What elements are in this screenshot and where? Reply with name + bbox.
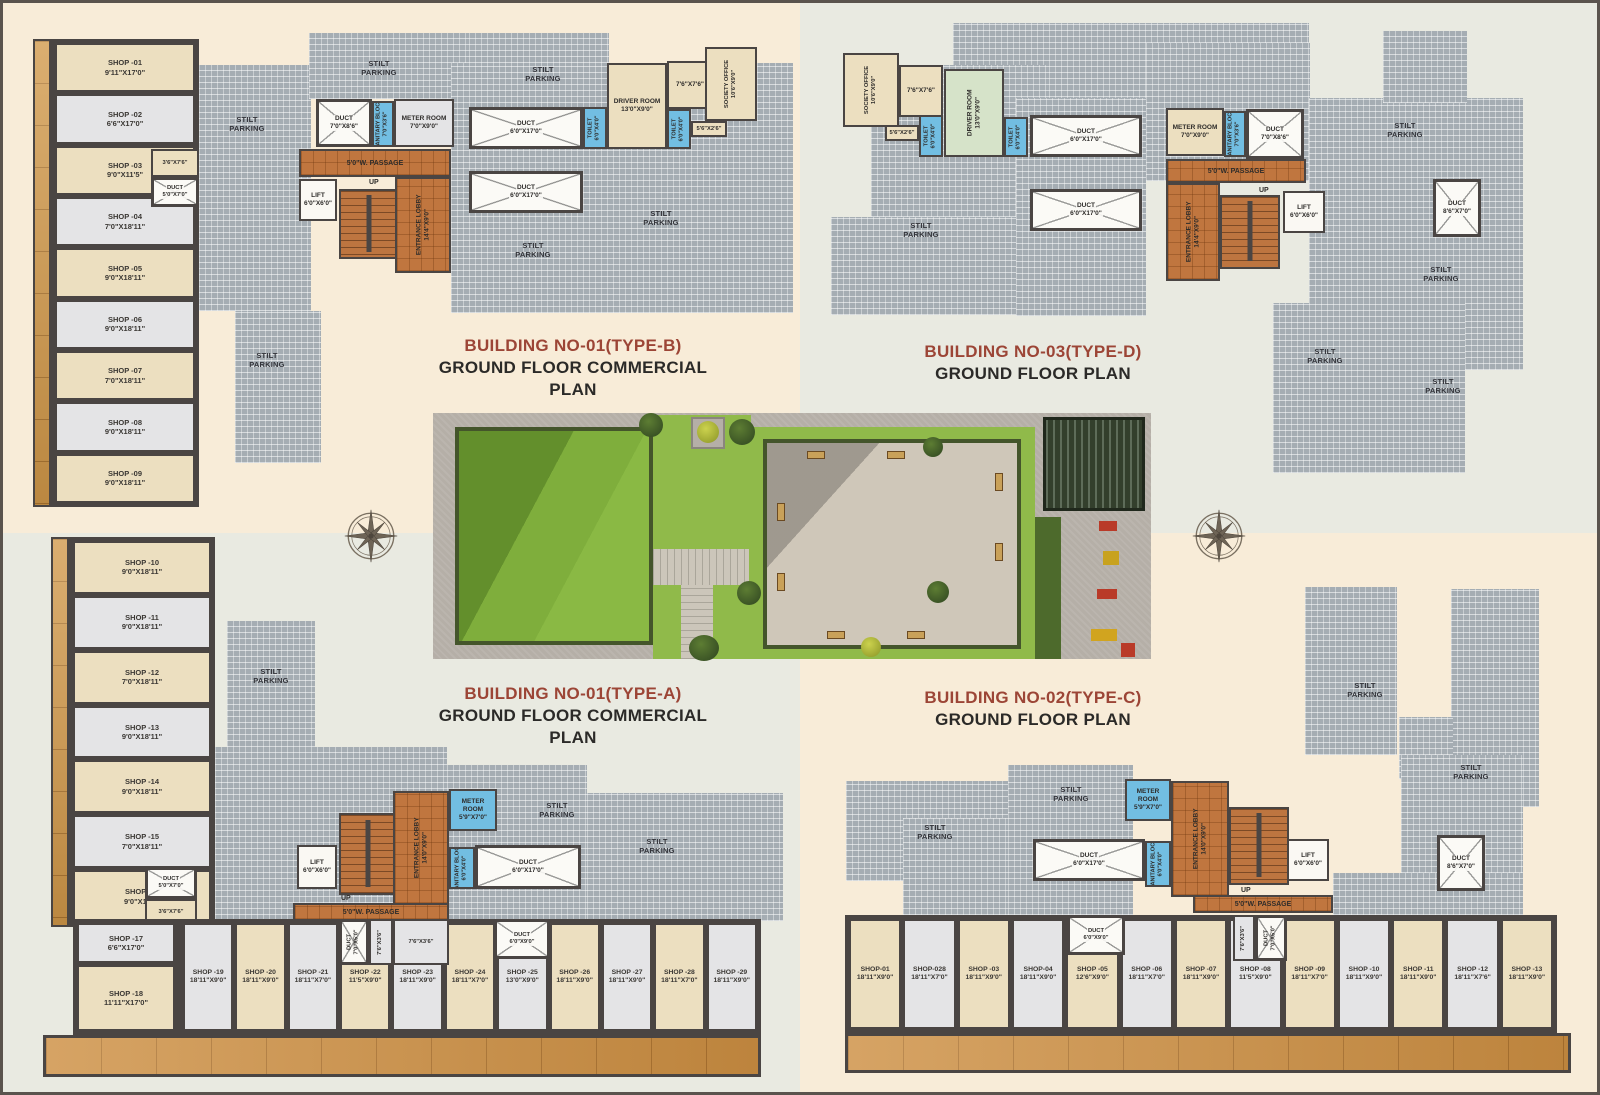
shop-cell: SHOP-04 18'11"X9'0" — [1012, 919, 1064, 1029]
b1a-lift: LIFT 6'0"X6'0" — [297, 845, 337, 889]
b1a-duct: DUCT 6'0"X17'0" — [475, 845, 581, 889]
shop-size: 6'6"X17'0" — [107, 119, 144, 128]
b3d-up-label: UP — [1259, 187, 1269, 194]
bench — [807, 451, 825, 459]
shop-cell: SHOP -07 7'0"X18'11" — [55, 351, 195, 400]
b1b-meter-room: METER ROOM 7'0"X9'0" — [394, 99, 454, 147]
stilt-parking-label: STILT PARKING — [347, 59, 411, 78]
shop-name: SHOP -12 — [1457, 966, 1488, 974]
shop-name: SHOP -25 — [507, 969, 538, 977]
compass-rose-icon — [1191, 508, 1247, 564]
b2c-duct: DUCT 6'0"X9'0" — [1067, 915, 1125, 955]
play-equipment — [1103, 551, 1119, 565]
bench — [777, 573, 785, 591]
hedge-strip — [1035, 517, 1061, 659]
tree — [689, 635, 719, 661]
shop-name: SHOP -03 — [968, 966, 999, 974]
shop-name: SHOP -22 — [350, 969, 381, 977]
b1b-room-3-6x7-6: 3'6"X7'6" — [151, 149, 199, 177]
shop-size: 18'11"X9'0" — [857, 974, 894, 982]
shop-cell: SHOP -28 18'11"X7'0" — [654, 923, 704, 1031]
shop-cell: SHOP-01 18'11"X9'0" — [849, 919, 901, 1029]
shop-name: SHOP -28 — [664, 969, 695, 977]
stilt-parking-label: STILT PARKING — [511, 65, 575, 84]
shop-cell: SHOP -21 18'11"X7'0" — [288, 923, 338, 1031]
b2c-entrance-lobby: ENTRANCE LOBBY14'0"X9'0" — [1171, 781, 1229, 897]
b1b-driver-room: DRIVER ROOM 13'0"X9'0" — [607, 63, 667, 149]
bench — [907, 631, 925, 639]
b1a-duct: DUCT 6'0"X9'0" — [494, 919, 550, 959]
shop-name: SHOP -24 — [455, 969, 486, 977]
stilt-parking-label: STILT PARKING — [889, 221, 953, 240]
shop-name: SHOP -21 — [297, 969, 328, 977]
shop-cell: SHOP -13 18'11"X9'0" — [1501, 919, 1553, 1029]
b3d-duct: DUCT 7'0"X8'6" — [1246, 109, 1304, 159]
b3d-title: BUILDING NO-03(TYPE-D) GROUND FLOOR PLAN — [883, 341, 1183, 385]
shop-size: 18'11"X9'0" — [609, 977, 646, 985]
shop-name: SHOP -06 — [108, 315, 142, 324]
shop-size: 13'0"X9'0" — [506, 977, 539, 985]
shop-name: SHOP -10 — [1349, 966, 1380, 974]
shop-size: 18'11"X7'0" — [1128, 974, 1165, 982]
shop-size: 18'11"X9'0" — [399, 977, 436, 985]
b1b-room-5-6x2-6: 5'6"X2'6" — [691, 121, 727, 137]
shop-name: SHOP -23 — [402, 969, 433, 977]
shop-name: SHOP -08 — [108, 418, 142, 427]
shop-name: SHOP -11 — [125, 613, 159, 622]
courtyard-render — [433, 413, 1151, 659]
b1a-duct: DUCT 5'0"X7'0" — [145, 867, 197, 899]
b3d-duct: DUCT 6'0"X17'0" — [1030, 115, 1142, 157]
b1a-shop-row: SHOP -19 18'11"X9'0" SHOP -20 18'11"X9'0… — [179, 919, 761, 1035]
b1a-up-label: UP — [341, 895, 351, 902]
b3d-title-line1: BUILDING NO-03(TYPE-D) — [883, 341, 1183, 363]
shop-name: SHOP -17 — [109, 934, 143, 943]
bench — [777, 503, 785, 521]
plaza — [763, 439, 1021, 649]
b1a-staircase — [339, 813, 397, 895]
shop-name: SHOP -06 — [1131, 966, 1162, 974]
b2c-shop-row: SHOP-01 18'11"X9'0" SHOP-028 18'11"X7'0"… — [845, 915, 1557, 1033]
shop-name: SHOP -29 — [716, 969, 747, 977]
stilt-parking-label: STILT PARKING — [501, 241, 565, 260]
shop-size: 9'0"X18'11" — [105, 478, 145, 487]
compass-rose-icon — [343, 508, 399, 564]
floor-band — [845, 1033, 1571, 1073]
stilt-parking-label: STILT PARKING — [1373, 121, 1437, 140]
shop-size: 9'0"X18'11" — [122, 787, 162, 796]
stilt-parking-label: STILT PARKING — [625, 837, 689, 856]
b3d-toilet: TOILET6'0"X4'0" — [1004, 117, 1028, 157]
stilt-parking-label: STILT PARKING — [235, 351, 299, 370]
b2c-meter-room: METER ROOM 5'9"X7'0" — [1125, 779, 1171, 821]
shop-cell: SHOP -19 18'11"X9'0" — [183, 923, 233, 1031]
shop-name: SHOP -11 — [1403, 966, 1433, 974]
stilt-parking-label: STILT PARKING — [1293, 347, 1357, 366]
b1b-title: BUILDING NO-01(TYPE-B) GROUND FLOOR COMM… — [418, 335, 728, 401]
shop-size: 18'11"X7'0" — [911, 974, 948, 982]
b1a-duct: DUCT7'0"X5'0" — [339, 919, 369, 965]
shop-size: 18'11"X7'6" — [1454, 974, 1491, 982]
shop-size: 18'11"X9'0" — [1346, 974, 1383, 982]
shop-name: SHOP -07 — [108, 366, 142, 375]
stilt-parking-label: STILT PARKING — [629, 209, 693, 228]
trellis-garden — [1043, 417, 1145, 511]
floor-plan-sheet: SHOP -01 9'11"X17'0" SHOP -02 6'6"X17'0"… — [0, 0, 1600, 1095]
b3d-toilet: TOILET6'0"X4'0" — [919, 115, 943, 157]
b1b-toilet: TOILET6'0"X4'0" — [583, 107, 607, 149]
tree — [697, 421, 719, 443]
b1b-shop-strip: SHOP -01 9'11"X17'0" SHOP -02 6'6"X17'0"… — [51, 39, 199, 507]
b3d-meter-room: METER ROOM 7'0"X9'0" — [1166, 108, 1224, 156]
shop-size: 18'11"X7'0" — [661, 977, 698, 985]
b1b-title-line2: GROUND FLOOR COMMERCIAL PLAN — [418, 357, 728, 401]
b2c-title: BUILDING NO-02(TYPE-C) GROUND FLOOR PLAN — [883, 687, 1183, 731]
shop-name: SHOP-04 — [1024, 966, 1053, 974]
shop-name: SHOP -13 — [1511, 966, 1542, 974]
shop-cell: SHOP -07 18'11"X9'0" — [1175, 919, 1227, 1029]
b3d-passage: 5'0"W. PASSAGE — [1166, 159, 1306, 183]
tree — [729, 419, 755, 445]
shop-size: 18'11"X9'0" — [714, 977, 751, 985]
shop-name: SHOP -20 — [245, 969, 276, 977]
bench — [887, 451, 905, 459]
shop-size: 11'5"X9'0" — [1239, 974, 1272, 982]
b1b-title-line1: BUILDING NO-01(TYPE-B) — [418, 335, 728, 357]
shop-size: 18'11"X9'0" — [1183, 974, 1220, 982]
shop-name: SHOP -09 — [108, 469, 142, 478]
play-equipment — [1091, 629, 1117, 641]
shop-cell: SHOP -08 9'0"X18'11" — [55, 402, 195, 451]
stilt-parking-label: STILT PARKING — [525, 801, 589, 820]
stone-path — [653, 549, 751, 585]
lawn — [455, 427, 653, 645]
b2c-sanitary-block: SANITARY BLOCK6'0"X4'0" — [1145, 841, 1171, 887]
shop-cell: SHOP -11 9'0"X18'11" — [73, 596, 211, 649]
shop-cell: SHOP -12 7'0"X18'11" — [73, 651, 211, 704]
b1b-society-office: SOCIETY OFFICE10'6"X9'0" — [705, 47, 757, 121]
shop-size: 18'11"X7'0" — [452, 977, 489, 985]
shop-name: SHOP -12 — [125, 668, 159, 677]
shop-name: SHOP-01 — [861, 966, 890, 974]
shop-cell: SHOP -27 18'11"X9'0" — [602, 923, 652, 1031]
shop-name: SHOP -07 — [1186, 966, 1217, 974]
tree — [861, 637, 881, 657]
b3d-title-line2: GROUND FLOOR PLAN — [883, 363, 1183, 385]
shop-size: 9'0"X18'11" — [105, 324, 145, 333]
b2c-room-7-6x3-6: 7'6"X3'6" — [1233, 915, 1255, 961]
b2c-up-label: UP — [1241, 887, 1251, 894]
shop-size: 18'11"X7'0" — [295, 977, 332, 985]
b1b-duct: DUCT 7'0"X8'6" — [316, 99, 372, 147]
b1a-room-7-6x3-6: 7'6"X3'6" — [393, 919, 449, 965]
tree — [737, 581, 761, 605]
shop-size: 9'0"X18'11" — [122, 732, 162, 741]
b1a-entrance-lobby: ENTRANCE LOBBY14'0"X9'0" — [393, 791, 449, 905]
shop-name: SHOP -18 — [109, 989, 143, 998]
shop-cell: SHOP -26 18'11"X9'0" — [550, 923, 600, 1031]
shop-size: 18'11"X9'0" — [1400, 974, 1437, 982]
b1b-toilet: TOILET6'0"X4'0" — [667, 109, 691, 149]
shop-cell: SHOP -01 9'11"X17'0" — [55, 43, 195, 92]
shop-cell: SHOP -06 18'11"X7'0" — [1121, 919, 1173, 1029]
b3d-lift: LIFT 6'0"X6'0" — [1283, 191, 1325, 233]
bench — [995, 473, 1003, 491]
shop-cell: SHOP -03 18'11"X9'0" — [958, 919, 1010, 1029]
bench — [827, 631, 845, 639]
shop-cell: SHOP -29 18'11"X9'0" — [707, 923, 757, 1031]
b2c-passage: 5'0"W. PASSAGE — [1193, 895, 1333, 913]
b2c-lift: LIFT 6'0"X6'0" — [1287, 839, 1329, 881]
shop-name: SHOP -03 — [108, 161, 142, 170]
tree — [923, 437, 943, 457]
shop-size: 9'0"X18'11" — [122, 622, 162, 631]
shop-size: 12'6"X9'0" — [1076, 974, 1109, 982]
b3d-society-office: SOCIETY OFFICE10'6"X9'0" — [843, 53, 899, 127]
shop-size: 18'11"X7'0" — [1291, 974, 1328, 982]
shop-name: SHOP -26 — [559, 969, 590, 977]
shop-cell: SHOP -10 9'0"X18'11" — [73, 541, 211, 594]
shop-size: 11'5"X9'0" — [349, 977, 382, 985]
shop-size: 9'0"X18'11" — [122, 567, 162, 576]
floor-band — [33, 39, 51, 507]
shop-cell: SHOP -15 7'0"X18'11" — [73, 815, 211, 868]
shop-cell: SHOP-028 18'11"X7'0" — [903, 919, 955, 1029]
shop-name: SHOP -27 — [612, 969, 643, 977]
shop-cell: SHOP -09 9'0"X18'11" — [55, 454, 195, 503]
b3d-staircase — [1220, 195, 1280, 269]
shop-size: 7'0"X18'11" — [105, 376, 145, 385]
shop-size: 18'11"X9'0" — [556, 977, 593, 985]
play-equipment — [1121, 643, 1135, 657]
b3d-driver-room: DRIVER ROOM13'0"X9'0" — [944, 69, 1004, 157]
shop-size: 7'0"X18'11" — [105, 222, 145, 231]
shop-size: 7'0"X18'11" — [122, 842, 162, 851]
shop-cell: SHOP -06 9'0"X18'11" — [55, 300, 195, 349]
stilt-parking-label: STILT PARKING — [239, 667, 303, 686]
stilt-parking-area — [1305, 587, 1397, 755]
shop-name: SHOP -13 — [125, 723, 159, 732]
shop-cell: SHOP -10 18'11"X9'0" — [1338, 919, 1390, 1029]
stilt-parking-area — [1383, 31, 1467, 103]
shop-name: SHOP -19 — [193, 969, 224, 977]
floor-band — [43, 1035, 761, 1077]
play-equipment — [1097, 589, 1117, 599]
shop-name: SHOP -10 — [125, 558, 159, 567]
stilt-parking-area — [235, 311, 321, 463]
b3d-duct: DUCT 6'0"X17'0" — [1030, 189, 1142, 231]
shop-cell: SHOP -17 6'6"X17'0" — [77, 923, 175, 963]
b1a-meter-room: METER ROOM 5'9"X7'0" — [449, 789, 497, 831]
shop-name: SHOP -15 — [125, 832, 159, 841]
b2c-duct: DUCT7'0"X5'0" — [1255, 915, 1287, 961]
b3d-room-7-6x7-6: 7'6"X7'6" — [899, 65, 943, 117]
b1a-shop-block: SHOP -17 6'6"X17'0" SHOP -18 11'11"X17'0… — [73, 919, 179, 1035]
shop-size: 9'0"X18'11" — [105, 427, 145, 436]
stilt-parking-label: STILT PARKING — [1409, 265, 1473, 284]
shop-size: 18'11"X9'0" — [1020, 974, 1057, 982]
b1b-sanitary-block: SANITARY BLOCK7'0"X3'6" — [372, 101, 394, 147]
stilt-parking-area — [1333, 873, 1523, 915]
shop-name: SHOP -14 — [125, 777, 159, 786]
b1b-duct: DUCT 6'0"X17'0" — [469, 171, 583, 213]
shop-name: SHOP -04 — [108, 212, 142, 221]
tree — [927, 581, 949, 603]
stilt-parking-label: STILT PARKING — [903, 823, 967, 842]
stilt-parking-label: STILT PARKING — [1411, 377, 1475, 396]
shop-name: SHOP -02 — [108, 110, 142, 119]
bench — [995, 543, 1003, 561]
stilt-parking-area — [199, 65, 311, 311]
b1a-title-line2: GROUND FLOOR COMMERCIAL PLAN — [418, 705, 728, 749]
shop-cell: SHOP -11 18'11"X9'0" — [1392, 919, 1444, 1029]
b3d-entrance-lobby: ENTRANCE LOBBY14'4"X9'0" — [1166, 183, 1220, 281]
shop-name: SHOP -09 — [1294, 966, 1325, 974]
shop-name: SHOP -01 — [108, 58, 142, 67]
shop-cell: SHOP -12 18'11"X7'6" — [1446, 919, 1498, 1029]
b1b-lift: LIFT 6'0"X6'0" — [299, 179, 337, 221]
b2c-duct: DUCT 8'6"X7'0" — [1437, 835, 1485, 891]
b2c-title-line2: GROUND FLOOR PLAN — [883, 709, 1183, 731]
shop-cell: SHOP -05 9'0"X18'11" — [55, 248, 195, 297]
play-equipment — [1099, 521, 1117, 531]
shop-cell: SHOP -20 18'11"X9'0" — [235, 923, 285, 1031]
stilt-parking-label: STILT PARKING — [215, 115, 279, 134]
b1b-staircase — [339, 189, 399, 259]
tree — [639, 413, 663, 437]
shop-size: 7'0"X18'11" — [122, 677, 162, 686]
shop-name: SHOP-028 — [913, 966, 946, 974]
b1b-up-label: UP — [369, 179, 379, 186]
shop-cell: SHOP -02 6'6"X17'0" — [55, 94, 195, 143]
shop-name: SHOP -05 — [108, 264, 142, 273]
shop-name: SHOP -08 — [1240, 966, 1271, 974]
stilt-parking-label: STILT PARKING — [1439, 763, 1503, 782]
b3d-duct: DUCT 8'6"X7'0" — [1433, 179, 1481, 237]
shop-size: 9'0"X18'11" — [105, 273, 145, 282]
shop-size: 6'6"X17'0" — [108, 943, 145, 952]
floor-band — [51, 537, 69, 927]
b1a-title-line1: BUILDING NO-01(TYPE-A) — [418, 683, 728, 705]
b1b-duct: DUCT 5'0"X7'0" — [151, 177, 199, 207]
shop-cell: SHOP -18 11'11"X17'0" — [77, 965, 175, 1031]
stilt-parking-label: STILT PARKING — [1039, 785, 1103, 804]
stilt-parking-area — [587, 793, 783, 921]
b2c-title-line1: BUILDING NO-02(TYPE-C) — [883, 687, 1183, 709]
shop-cell: SHOP -09 18'11"X7'0" — [1284, 919, 1336, 1029]
shop-size: 9'0"X11'5" — [107, 170, 143, 179]
b3d-sanitary-block: SANITARY BLOCK7'0"X3'6" — [1224, 111, 1246, 157]
shop-size: 11'11"X17'0" — [104, 998, 148, 1007]
shop-cell: SHOP -13 9'0"X18'11" — [73, 706, 211, 759]
shop-cell: SHOP -14 9'0"X18'11" — [73, 760, 211, 813]
b1b-passage: 5'0"W. PASSAGE — [299, 149, 451, 177]
shop-size: 18'11"X9'0" — [1509, 974, 1546, 982]
b1a-sanitary-block: SANITARY BLOCK6'0"X4'0" — [449, 847, 475, 889]
shop-size: 18'11"X9'0" — [966, 974, 1003, 982]
b3d-room-5-6x2-6: 5'6"X2'6" — [885, 125, 919, 141]
b2c-staircase — [1229, 807, 1289, 885]
b1a-title: BUILDING NO-01(TYPE-A) GROUND FLOOR COMM… — [418, 683, 728, 749]
b2c-duct: DUCT 6'0"X17'0" — [1033, 839, 1145, 881]
b1b-duct: DUCT 6'0"X17'0" — [469, 107, 583, 149]
shop-name: SHOP -05 — [1077, 966, 1108, 974]
shop-size: 18'11"X9'0" — [242, 977, 279, 985]
shop-size: 9'11"X17'0" — [105, 68, 145, 77]
b1b-entrance-lobby: ENTRANCE LOBBY14'4"X9'0" — [395, 177, 451, 273]
stilt-parking-label: STILT PARKING — [1333, 681, 1397, 700]
shop-size: 18'11"X9'0" — [190, 977, 227, 985]
shop-cell: SHOP -24 18'11"X7'0" — [445, 923, 495, 1031]
b1a-room-7-6x3-6: 7'6"X3'6" — [369, 919, 393, 965]
